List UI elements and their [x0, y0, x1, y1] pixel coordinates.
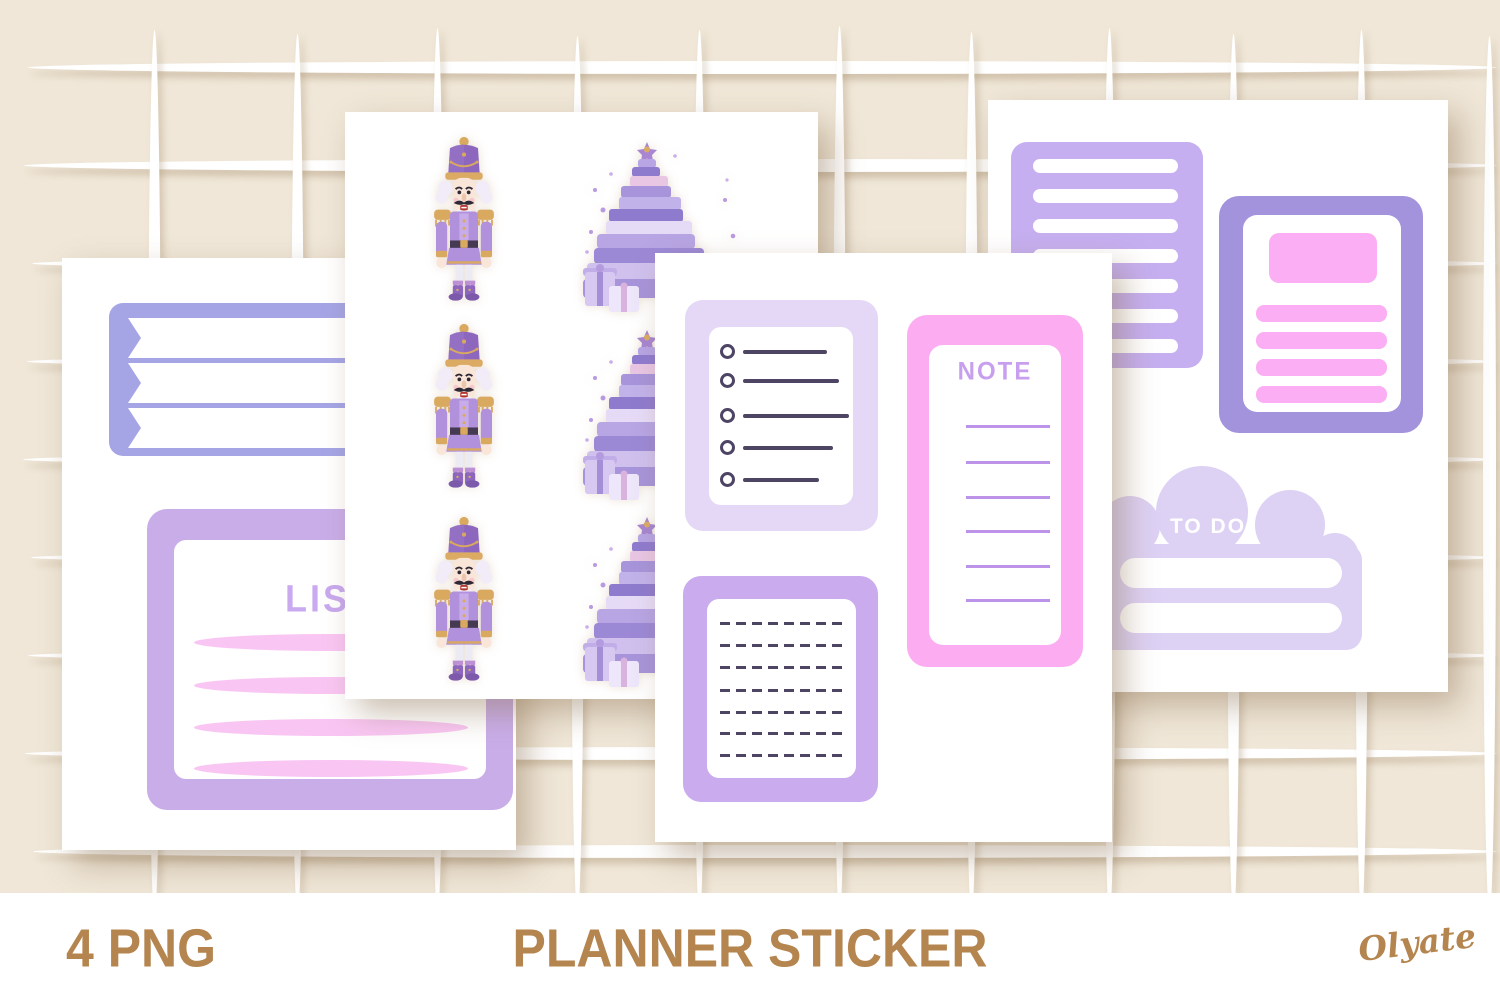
grid-line-v — [1483, 36, 1496, 915]
checklist-paper — [709, 327, 853, 505]
checkbox-circle-icon — [720, 344, 735, 359]
note-paper: NOTE — [929, 345, 1061, 645]
note-writing-line — [966, 461, 1050, 464]
nutcracker-sticker — [422, 513, 506, 685]
note-sticker: NOTE — [907, 315, 1083, 667]
checkbox-circle-icon — [720, 440, 735, 455]
dashed-writing-line — [720, 754, 842, 757]
framed-card-sticker — [1219, 196, 1423, 433]
dashed-writing-line — [720, 644, 842, 647]
nutcracker-sticker — [422, 133, 506, 305]
grid-line-h — [28, 61, 1497, 74]
striped-note-line — [1033, 159, 1178, 173]
dashed-note-sticker — [683, 576, 878, 802]
list-writing-line — [194, 719, 468, 736]
checklist-line — [743, 379, 839, 383]
card-header-block — [1269, 233, 1377, 283]
checklist-row — [709, 343, 853, 361]
sticker-sheet-checklist-note: NOTE — [655, 253, 1112, 842]
card-text-line — [1256, 386, 1387, 403]
dashed-writing-line — [720, 732, 842, 735]
nutcracker-sticker — [422, 320, 506, 492]
checklist-row — [709, 439, 853, 457]
striped-note-line — [1033, 189, 1178, 203]
product-preview-image: LIST — [0, 0, 1500, 1000]
checklist-line — [743, 350, 827, 354]
dashed-writing-line — [720, 622, 842, 625]
checklist-line — [743, 446, 833, 450]
framed-card-paper — [1243, 215, 1401, 412]
product-title: PLANNER STICKER — [0, 917, 1500, 980]
card-text-line — [1256, 359, 1387, 376]
list-writing-line — [194, 760, 468, 777]
caption-bar: 4 PNG PLANNER STICKER Olyate — [0, 893, 1500, 1000]
todo-cloud-sticker: TO DO — [1090, 462, 1370, 652]
note-writing-line — [966, 565, 1050, 568]
card-text-line — [1256, 305, 1387, 322]
checklist-row — [709, 407, 853, 425]
dashed-writing-line — [720, 711, 842, 714]
todo-title: TO DO — [1170, 515, 1246, 538]
note-writing-line — [966, 530, 1050, 533]
note-title: NOTE — [929, 357, 1061, 386]
checkbox-circle-icon — [720, 408, 735, 423]
checklist-line — [743, 414, 849, 418]
checklist-line — [743, 478, 819, 482]
striped-note-line — [1033, 219, 1178, 233]
checkbox-circle-icon — [720, 472, 735, 487]
dashed-writing-line — [720, 666, 842, 669]
note-writing-line — [966, 599, 1050, 602]
dashed-note-paper — [707, 599, 856, 778]
checklist-row — [709, 372, 853, 390]
checklist-row — [709, 471, 853, 489]
dashed-writing-line — [720, 689, 842, 692]
checkbox-circle-icon — [720, 373, 735, 388]
note-writing-line — [966, 496, 1050, 499]
checklist-sticker — [685, 300, 878, 531]
note-writing-line — [966, 425, 1050, 428]
card-text-line — [1256, 332, 1387, 349]
